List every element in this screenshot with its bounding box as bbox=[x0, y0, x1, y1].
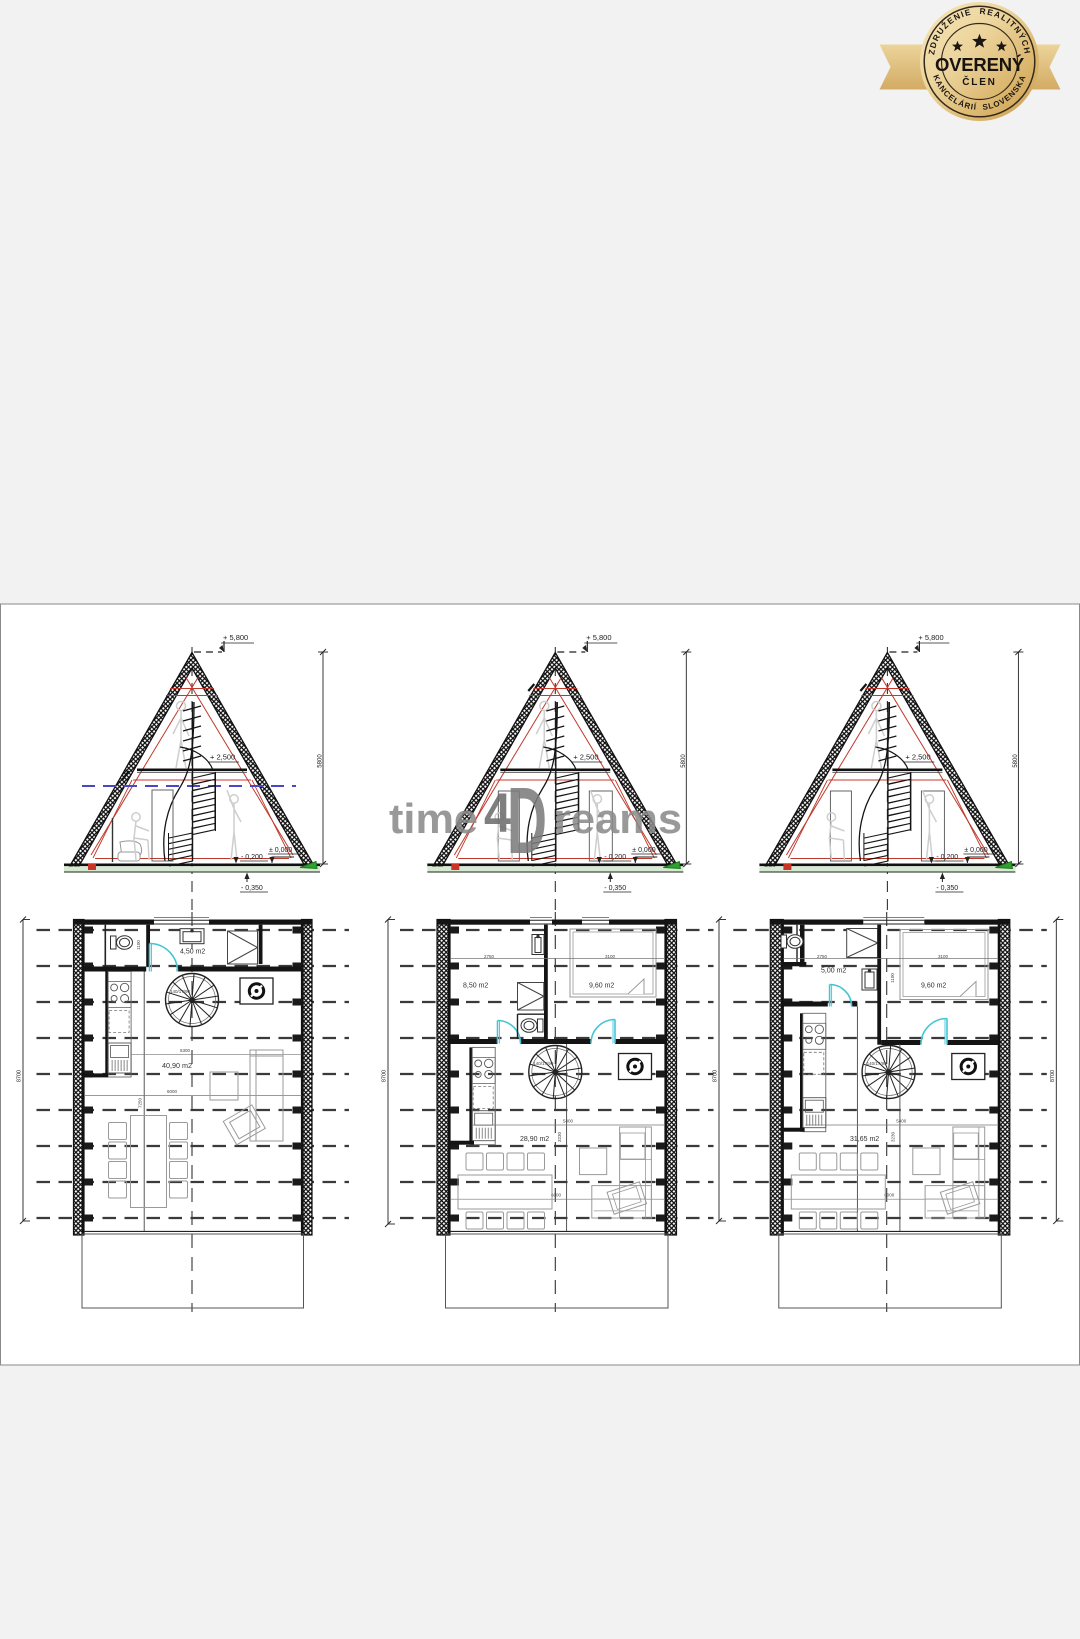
svg-text:- 0,200: - 0,200 bbox=[241, 854, 263, 861]
svg-text:8700: 8700 bbox=[1050, 1070, 1056, 1082]
svg-text:OVERENÝ: OVERENÝ bbox=[935, 54, 1025, 75]
svg-text:140/17/90: 140/17/90 bbox=[533, 1061, 554, 1066]
svg-text:40,90 m2: 40,90 m2 bbox=[162, 1061, 192, 1070]
svg-text:+ 2,500: + 2,500 bbox=[210, 753, 235, 762]
svg-text:5800: 5800 bbox=[1013, 754, 1019, 768]
svg-text:D: D bbox=[507, 768, 547, 874]
svg-text:8700: 8700 bbox=[17, 1070, 23, 1082]
svg-text:8700: 8700 bbox=[713, 1070, 719, 1082]
svg-text:- 0,350: - 0,350 bbox=[604, 885, 626, 892]
svg-text:3230: 3230 bbox=[890, 1131, 895, 1142]
svg-text:2750: 2750 bbox=[817, 954, 828, 959]
svg-text:- 0,200: - 0,200 bbox=[936, 854, 958, 861]
svg-text:reams: reams bbox=[554, 795, 682, 842]
svg-text:28,90 m2: 28,90 m2 bbox=[520, 1136, 549, 1143]
svg-text:8,50 m2: 8,50 m2 bbox=[463, 983, 488, 990]
svg-text:1100: 1100 bbox=[136, 940, 141, 950]
svg-text:5800: 5800 bbox=[318, 754, 324, 768]
svg-text:3230: 3230 bbox=[557, 1131, 562, 1142]
svg-text:+ 5,800: + 5,800 bbox=[918, 633, 943, 642]
svg-text:9,60 m2: 9,60 m2 bbox=[921, 983, 946, 990]
svg-text:ČLEN: ČLEN bbox=[962, 75, 996, 88]
svg-text:+ 5,800: + 5,800 bbox=[223, 633, 248, 642]
svg-text:4,50 m2: 4,50 m2 bbox=[180, 949, 205, 956]
svg-text:7250: 7250 bbox=[138, 1097, 143, 1108]
svg-text:5,00 m2: 5,00 m2 bbox=[821, 968, 846, 975]
svg-text:- 0,200: - 0,200 bbox=[604, 854, 626, 861]
svg-text:6000: 6000 bbox=[884, 1193, 895, 1198]
svg-text:± 0,000: ± 0,000 bbox=[269, 847, 292, 854]
svg-text:31,65 m2: 31,65 m2 bbox=[850, 1136, 879, 1143]
svg-text:5400: 5400 bbox=[563, 1119, 574, 1124]
svg-text:- 0,350: - 0,350 bbox=[241, 885, 263, 892]
svg-text:time: time bbox=[389, 795, 478, 842]
svg-text:+ 2,500: + 2,500 bbox=[905, 753, 930, 762]
svg-text:± 0,000: ± 0,000 bbox=[964, 847, 987, 854]
svg-text:2750: 2750 bbox=[484, 954, 495, 959]
svg-text:140/17/90: 140/17/90 bbox=[867, 1061, 888, 1066]
svg-text:6000: 6000 bbox=[551, 1193, 562, 1198]
svg-text:- 0,350: - 0,350 bbox=[936, 885, 958, 892]
svg-text:± 0,000: ± 0,000 bbox=[632, 847, 655, 854]
svg-text:8700: 8700 bbox=[382, 1070, 388, 1082]
svg-text:6000: 6000 bbox=[167, 1089, 178, 1094]
svg-text:3100: 3100 bbox=[605, 954, 616, 959]
svg-text:9,60 m2: 9,60 m2 bbox=[589, 983, 614, 990]
svg-text:1100: 1100 bbox=[890, 973, 895, 983]
svg-text:5800: 5800 bbox=[681, 754, 687, 768]
svg-text:5300: 5300 bbox=[180, 1048, 191, 1053]
svg-text:+ 5,800: + 5,800 bbox=[586, 633, 611, 642]
svg-text:5400: 5400 bbox=[896, 1119, 907, 1124]
svg-text:140/17/90: 140/17/90 bbox=[170, 989, 191, 994]
svg-text:3100: 3100 bbox=[938, 954, 949, 959]
svg-text:+ 2,500: + 2,500 bbox=[573, 753, 598, 762]
